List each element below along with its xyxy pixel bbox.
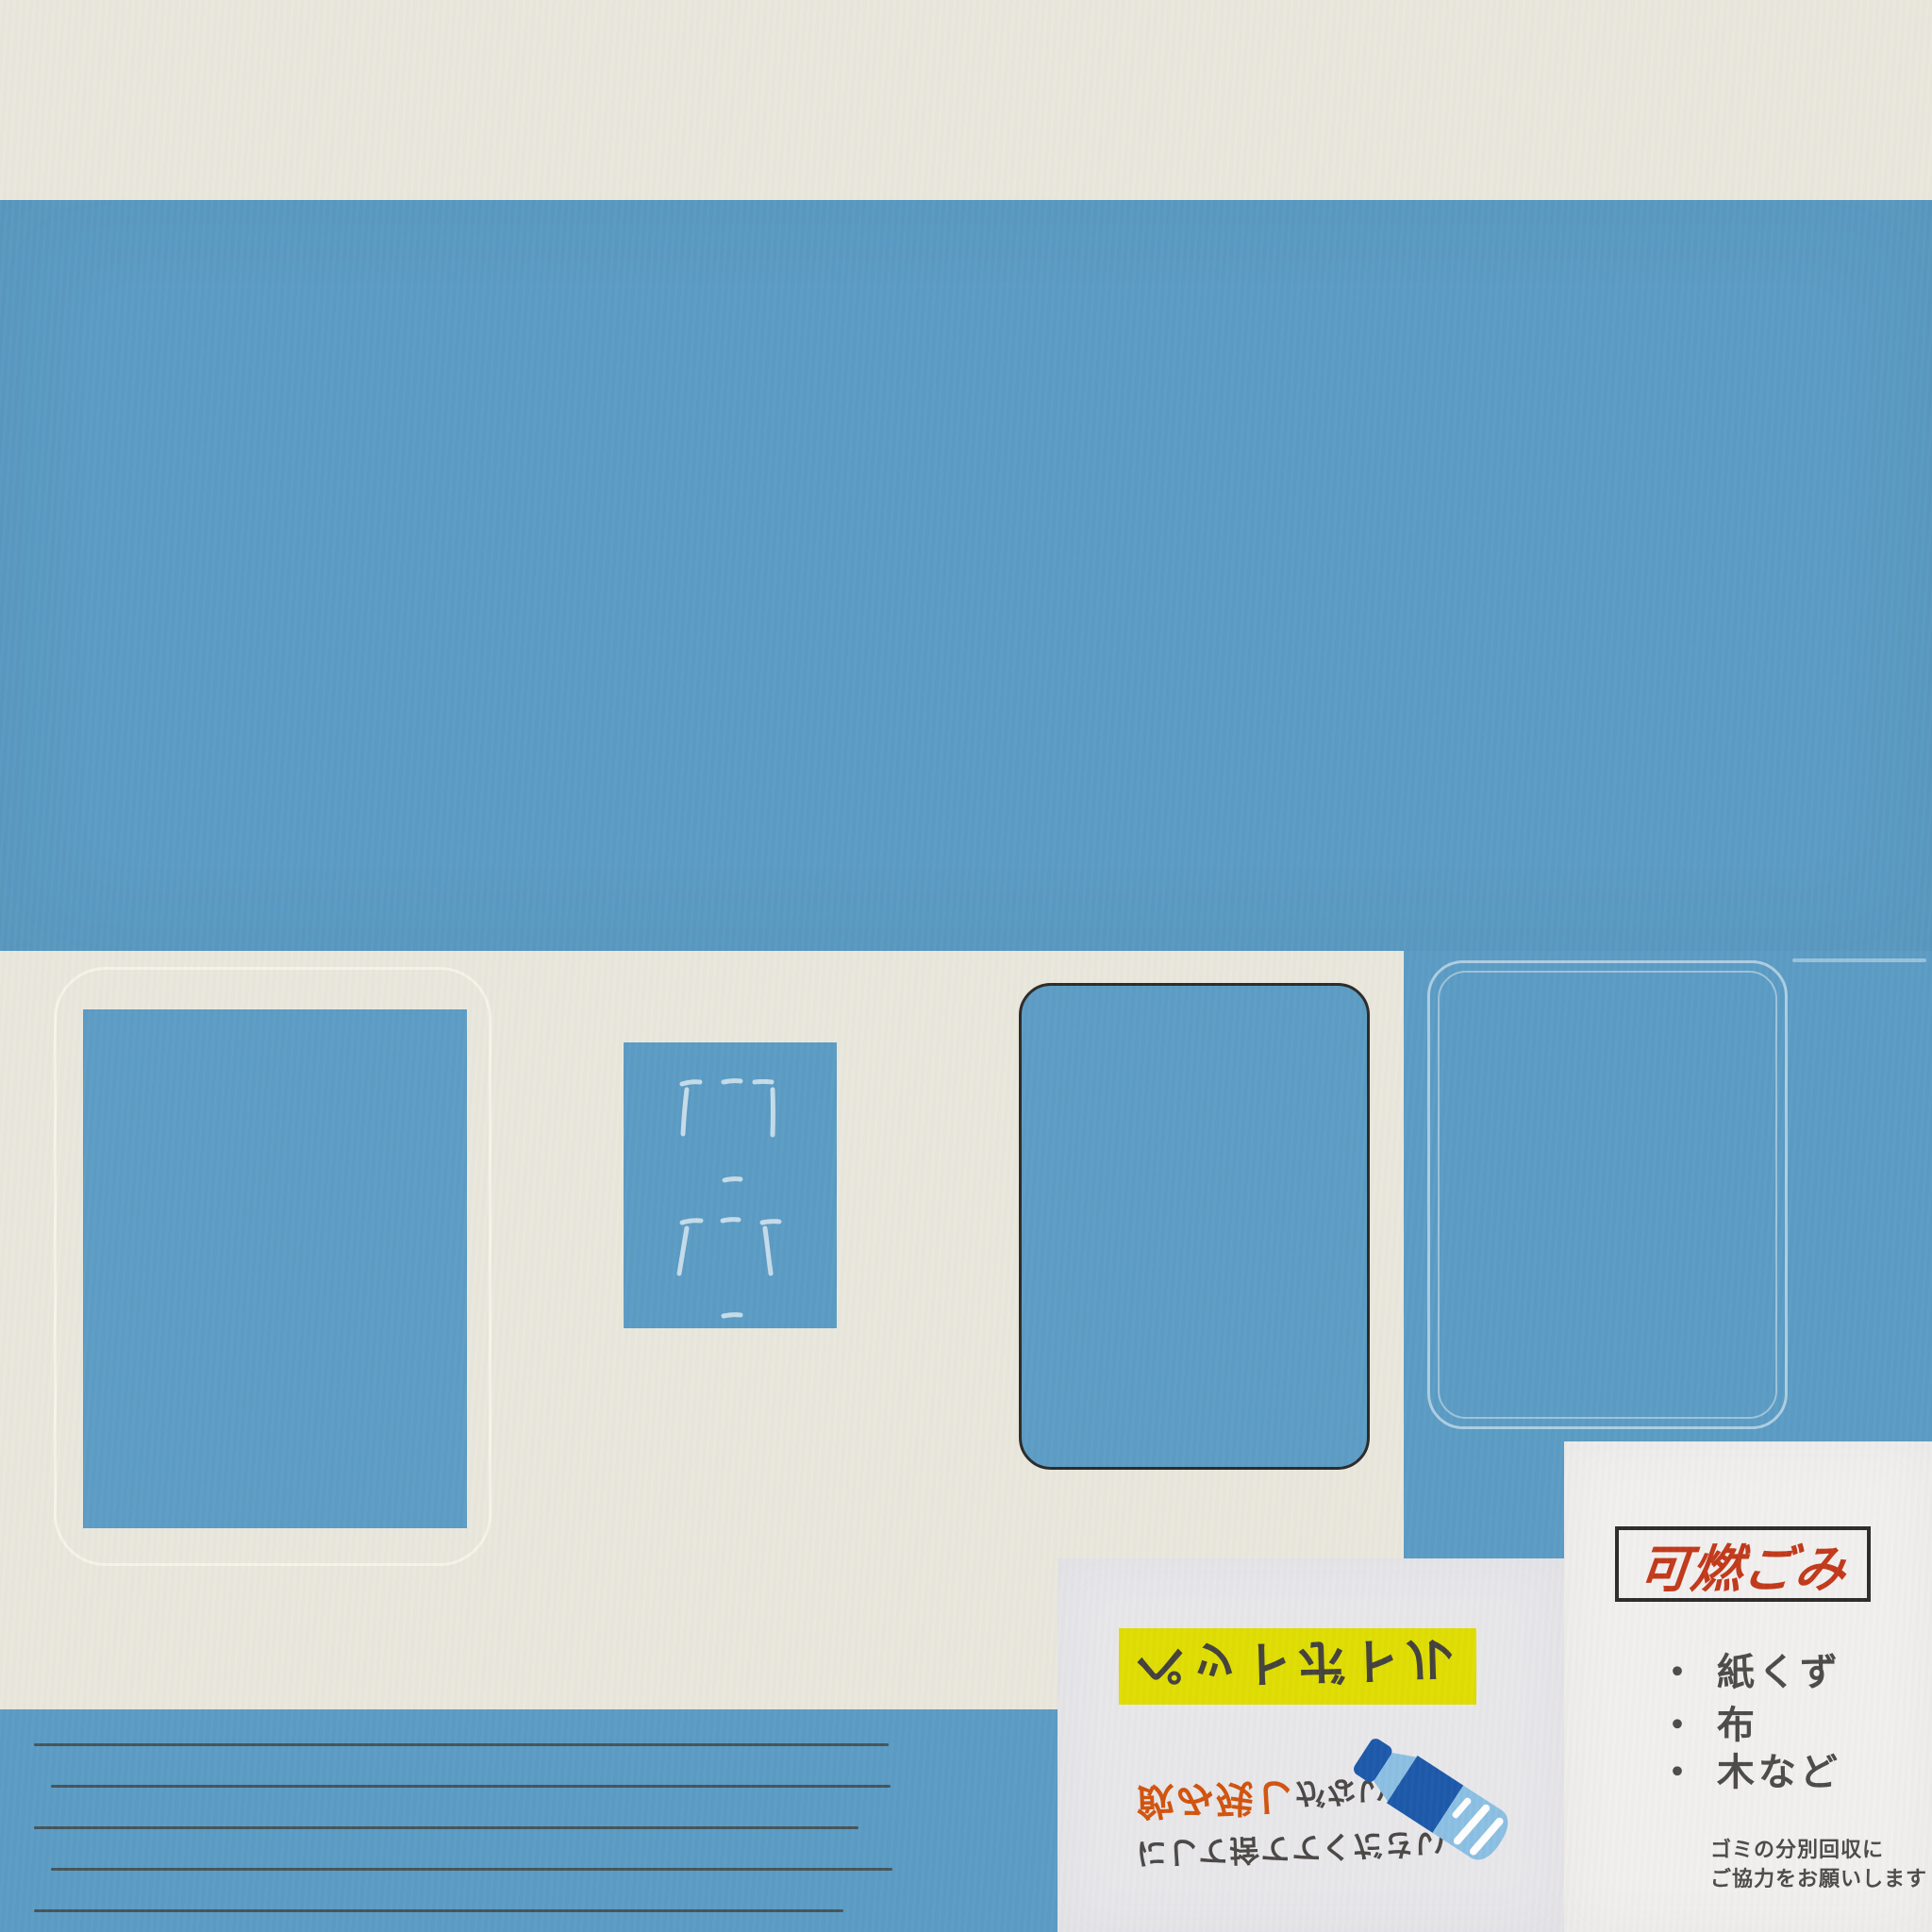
upper-blue-wall-band — [0, 200, 1932, 951]
burnable-footer-line1: ゴミの分別回収に — [1710, 1836, 1927, 1865]
outlined-door-panel — [1019, 983, 1370, 1470]
burnable-item: ・ 紙くず — [1658, 1641, 1841, 1696]
small-blue-panel-sketched — [624, 1042, 837, 1328]
siding-line — [34, 1909, 843, 1912]
pet-bottle-icon — [1341, 1717, 1557, 1887]
pet-poster-banner-label: ペットボトル — [1136, 1627, 1460, 1707]
burnable-garbage-poster: 可燃ごみ ・ 紙くず ・ 布 ・ 木など ゴミの分別回収に ご協力をお願いします — [1564, 1441, 1932, 1932]
sketched-outline-panel — [1427, 960, 1788, 1429]
burnable-footer-line2: ご協力をお願いします — [1710, 1865, 1927, 1894]
sketch-line-fragment — [1792, 958, 1926, 962]
large-blue-panel — [83, 1009, 467, 1528]
wall-scene: ペットボトル 飲み残しがないよう にして捨ててください 可燃ごみ ・ 紙くず ・… — [0, 0, 1932, 1932]
burnable-footer: ゴミの分別回収に ご協力をお願いします — [1710, 1836, 1927, 1894]
chalk-doodle-icon — [624, 1042, 837, 1328]
pet-poster-banner: ペットボトル — [1119, 1628, 1476, 1705]
siding-line — [34, 1743, 889, 1746]
burnable-item: ・ 木など — [1658, 1741, 1841, 1796]
siding-line — [34, 1826, 858, 1829]
pet-poster-line1-highlight: 飲み残し — [1136, 1774, 1296, 1823]
burnable-title: 可燃ごみ — [1635, 1527, 1850, 1602]
burnable-title-box: 可燃ごみ — [1615, 1526, 1871, 1602]
lower-blue-siding — [0, 1709, 1058, 1932]
siding-line — [51, 1785, 891, 1788]
pet-bottle-poster: ペットボトル 飲み残しがないよう にして捨ててください — [1058, 1558, 1564, 1932]
siding-line — [51, 1868, 892, 1871]
